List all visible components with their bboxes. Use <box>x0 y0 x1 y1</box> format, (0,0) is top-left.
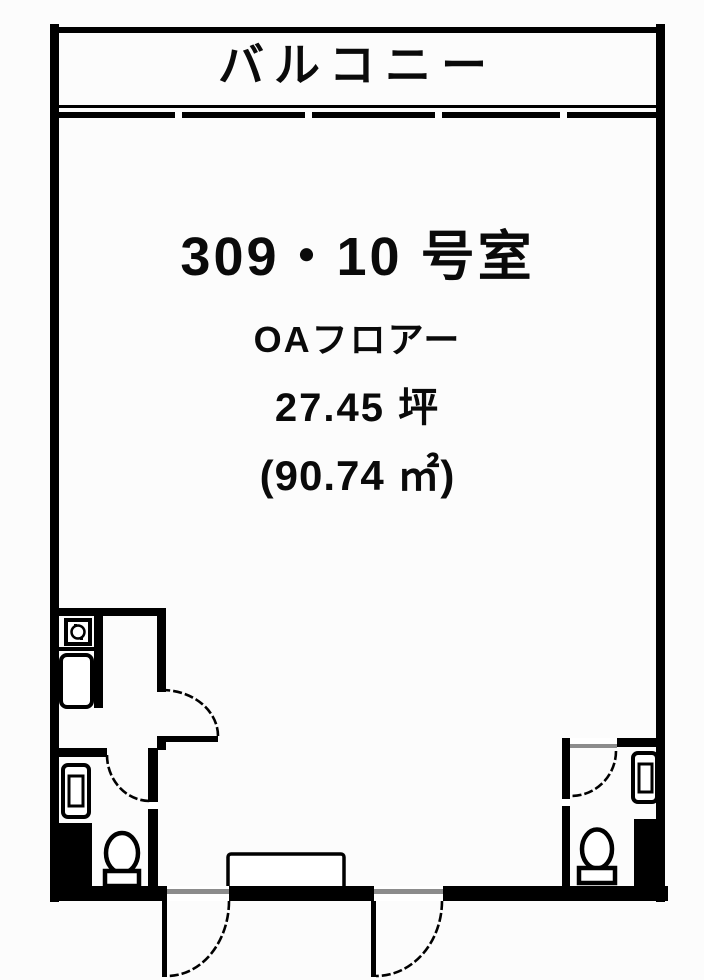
pipe-shaft-left <box>53 823 92 888</box>
bottom-wall <box>50 886 668 901</box>
window-line-break <box>435 112 442 118</box>
floor-spec-label: OAフロアー <box>59 320 656 360</box>
floorplan-canvas: バルコニー 309・10 号室 OAフロアー 27.45 坪 (90.74 ㎡) <box>0 0 704 980</box>
wc-left-door-swing-arc-icon <box>107 755 150 801</box>
wc-left-top-wall <box>50 748 107 757</box>
pipe-shaft-right <box>634 819 665 888</box>
kitchen-sink-icon <box>61 655 92 707</box>
area-tsubo-label: 27.45 坪 <box>59 386 656 430</box>
room-number-label: 309・10 号室 <box>59 228 656 287</box>
wc-right-door-threshold <box>570 744 617 748</box>
wc-right-door-swing-arc-icon <box>571 751 616 796</box>
entrance-threshold-right <box>374 889 443 894</box>
window-line-break <box>175 112 182 118</box>
window-line-break <box>560 112 567 118</box>
wc-right-left-wall <box>562 747 570 888</box>
entrance-threshold-left <box>167 889 229 894</box>
toilet-icon-left <box>105 833 139 886</box>
wash-basin-icon-left <box>63 765 89 817</box>
wc-right-door-stop-gap <box>562 799 570 806</box>
stove-icon <box>66 620 90 644</box>
wc-left-right-wall <box>148 748 158 888</box>
kitchen-door-swing-arc-icon <box>162 690 218 736</box>
balcony-label: バルコニー <box>59 42 656 88</box>
entrance-door-right-swing-arc-icon <box>376 901 442 976</box>
toilet-icon-right <box>579 830 615 884</box>
entrance-door-left-swing-arc-icon <box>167 901 229 976</box>
balcony-window-line <box>54 112 665 118</box>
entrance-door-right-leaf <box>371 901 376 977</box>
wc-left-door-stop-gap <box>148 802 158 809</box>
kitchen-partition-wall <box>94 614 103 708</box>
area-sqm-label: (90.74 ㎡) <box>59 453 656 499</box>
window-line-break <box>305 112 312 118</box>
kitchen-door-leaf <box>160 736 218 742</box>
wash-basin-icon-right <box>633 753 657 802</box>
entrance-door-left-leaf <box>162 901 167 977</box>
balcony-window-line <box>54 105 662 108</box>
kitchen-top-wall <box>50 608 166 616</box>
top-wall <box>50 27 665 33</box>
entrance-step <box>228 854 344 889</box>
left-wall <box>50 24 59 902</box>
kitchen-right-wall-upper <box>157 608 166 692</box>
kitchen-counter-divider <box>56 647 95 651</box>
